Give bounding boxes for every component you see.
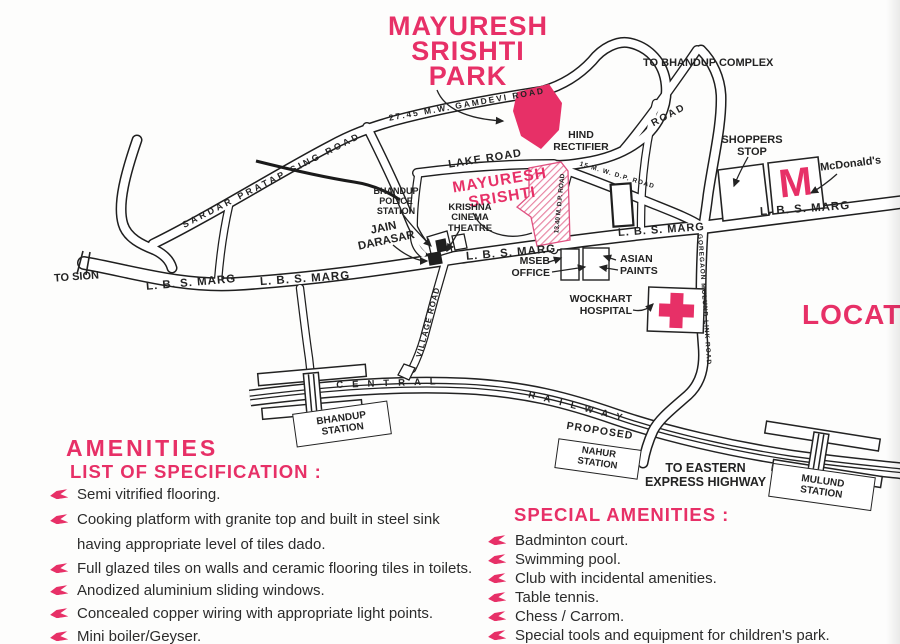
list-item-continuation: having appropriate level of tiles dado.	[77, 536, 326, 553]
list-item-text: Swimming pool.	[515, 551, 621, 568]
pointer-bullet-icon	[488, 611, 507, 622]
list-item: Anodized aluminium sliding windows.	[50, 582, 325, 599]
label-krishna-cinema: KRISHNA CINEMA THEATRE	[437, 203, 503, 234]
brochure-location-map-page: MAYURESH SRISHTI PARK TO BHANDUP COMPLEX…	[0, 0, 900, 644]
label-hind-rectifier: HIND RECTIFIER	[545, 130, 617, 153]
list-item-text: Full glazed tiles on walls and ceramic f…	[77, 560, 472, 577]
list-item-text: Club with incidental amenities.	[515, 570, 717, 587]
list-item: Cooking platform with granite top and bu…	[50, 511, 440, 528]
pointer-bullet-icon	[488, 573, 507, 584]
list-item: Swimming pool.	[488, 551, 621, 568]
pointer-bullet-icon	[50, 563, 69, 574]
list-item: Chess / Carrom.	[488, 608, 624, 625]
list-item-text: Semi vitrified flooring.	[77, 486, 220, 503]
pointer-bullet-icon	[50, 631, 69, 642]
pointer-bullet-icon	[50, 489, 69, 500]
list-item: Concealed copper wiring with appropriate…	[50, 605, 433, 622]
location-heading: LOCATION	[802, 300, 900, 331]
special-amenities-heading: SPECIAL AMENITIES :	[514, 505, 729, 525]
list-item: Club with incidental amenities.	[488, 570, 717, 587]
label-to-eastern-express-highway: TO EASTERN EXPRESS HIGHWAY	[628, 462, 783, 490]
pointer-bullet-icon	[50, 608, 69, 619]
list-item-text: Anodized aluminium sliding windows.	[77, 582, 325, 599]
amenities-heading: AMENITIES	[66, 436, 218, 461]
list-item: Table tennis.	[488, 589, 599, 606]
list-item: Semi vitrified flooring.	[50, 486, 220, 503]
pointer-bullet-icon	[488, 630, 507, 641]
pointer-bullet-icon	[488, 535, 507, 546]
label-mseb-office: MSEB OFFICE	[508, 256, 550, 279]
list-item-text: Cooking platform with granite top and bu…	[77, 511, 440, 528]
list-item-text: Table tennis.	[515, 589, 599, 606]
label-wockhart-hospital: WOCKHART HOSPITAL	[558, 294, 632, 317]
label-asian-paints: ASIAN PAINTS	[620, 254, 670, 277]
list-item: Mini boiler/Geyser.	[50, 628, 201, 644]
pointer-bullet-icon	[50, 514, 69, 525]
complex-building	[611, 183, 634, 226]
list-item: Special tools and equipment for children…	[488, 627, 830, 644]
list-item-text: Concealed copper wiring with appropriate…	[77, 605, 433, 622]
label-to-bhandup-complex: TO BHANDUP COMPLEX	[643, 57, 773, 69]
list-item-text: Mini boiler/Geyser.	[77, 628, 201, 644]
mseb-office-buildings	[561, 248, 609, 280]
pointer-bullet-icon	[488, 592, 507, 603]
label-bhandup-police: BHANDUP POLICE STATION	[365, 187, 427, 217]
list-item-text: Special tools and equipment for children…	[515, 627, 830, 644]
list-item-text: Chess / Carrom.	[515, 608, 624, 625]
pointer-bullet-icon	[50, 585, 69, 596]
list-item: Full glazed tiles on walls and ceramic f…	[50, 560, 472, 577]
list-item-text: Badminton court.	[515, 532, 628, 549]
page-title: MAYURESH SRISHTI PARK	[356, 14, 580, 89]
specification-heading: LIST OF SPECIFICATION :	[70, 462, 322, 482]
list-item-text: having appropriate level of tiles dado.	[77, 536, 326, 553]
label-shoppers-stop: SHOPPERS STOP	[712, 134, 792, 158]
wockhart-hospital-building	[647, 287, 705, 333]
pointer-bullet-icon	[488, 554, 507, 565]
list-item: Badminton court.	[488, 532, 628, 549]
